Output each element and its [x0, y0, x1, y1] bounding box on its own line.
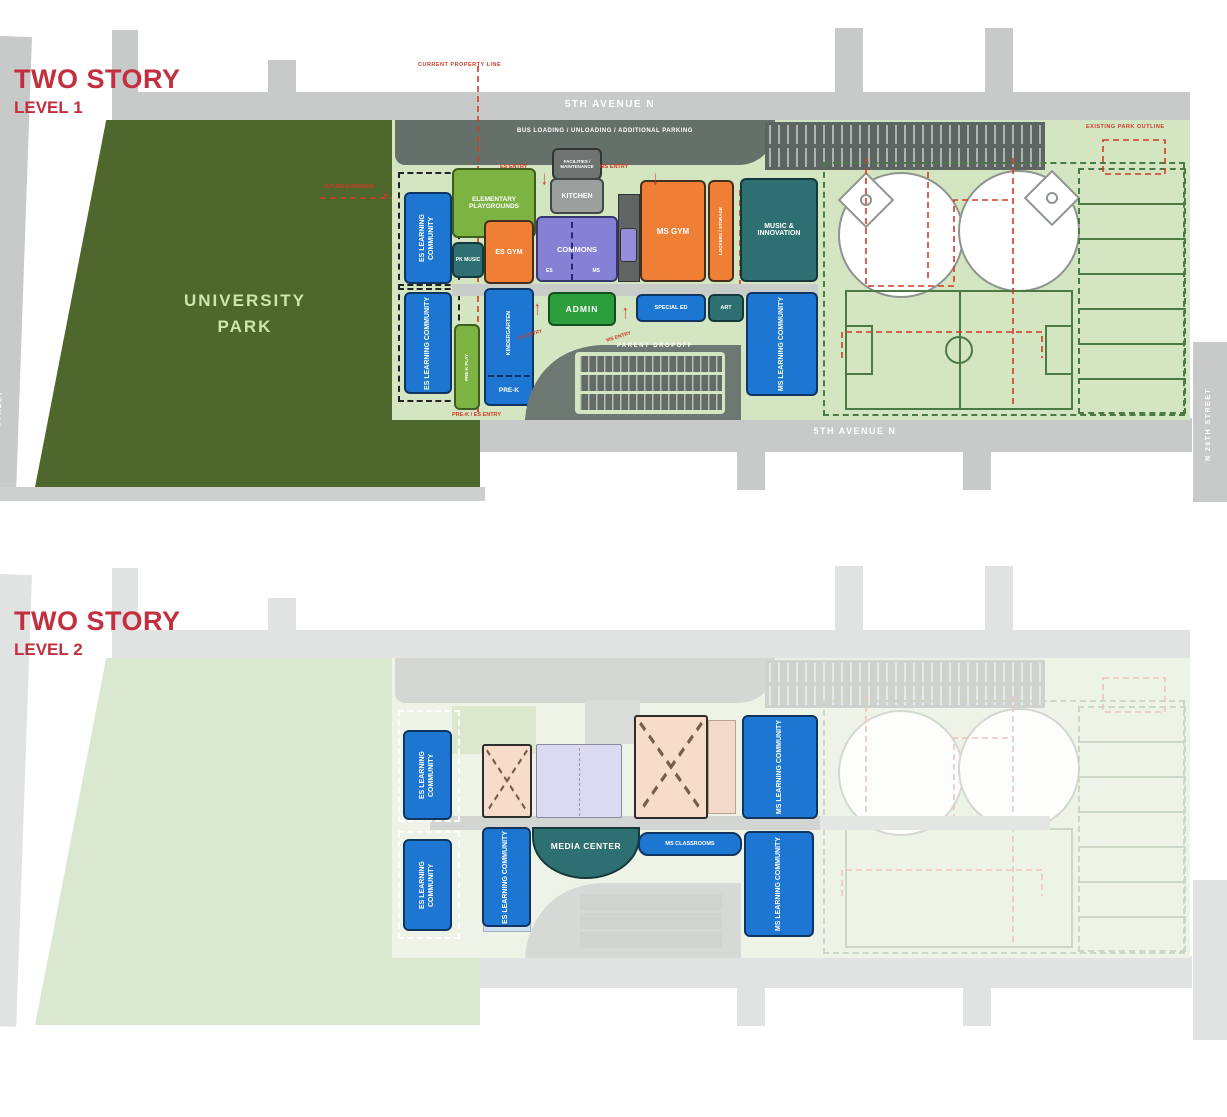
level1-title: TWO STORY: [14, 64, 181, 95]
open-to-below-x-icon: [484, 746, 530, 816]
building-admin: ADMIN: [548, 292, 616, 326]
property-line-label: CURRENT PROPERTY LINE: [418, 62, 501, 68]
level1-subtitle: LEVEL 1: [14, 98, 83, 118]
level2-title: TWO STORY: [14, 606, 181, 637]
building-music-innovation: MUSIC & INNOVATION: [740, 178, 818, 282]
level-2-plan: ES LEARNING COMMUNITY MS LEARNING COMMUN…: [0, 560, 1227, 1117]
open-to-below-x-icon: [636, 717, 706, 817]
building-lockers-storage: LOCKERS / STORAGE: [708, 180, 734, 282]
building-kitchen: KITCHEN: [550, 178, 604, 214]
site-plan-canvas: 5TH AVENUE N N 35TH STREET N 26TH STREET…: [0, 0, 1227, 1117]
building-ms-learning-community-l2-top: MS LEARNING COMMUNITY: [742, 715, 818, 819]
open-to-below-large: [634, 715, 708, 819]
volume-divider: [579, 748, 580, 816]
future-expansion-label: FUTURE EXPANSION: [318, 184, 380, 191]
es-entry-top-label: ES ENTRY: [500, 164, 527, 170]
corridor-level2-faded: [820, 816, 1050, 830]
building-facilities-maintenance: FACILITIES / MAINTENANCE: [552, 148, 602, 180]
es-entry-up-arrow-icon: ↑: [534, 296, 541, 319]
ms-entry-down-arrow-icon: ↓: [652, 166, 659, 189]
building-es-learning-community-l2-bottom-left: ES LEARNING COMMUNITY: [403, 839, 452, 931]
future-expansion-arrow-icon: ➤: [383, 192, 388, 199]
dropoff-row-faded: [580, 913, 722, 929]
open-to-below-small: [482, 744, 532, 818]
es-entry-down-arrow-icon: ↓: [541, 166, 548, 189]
existing-park-label: EXISTING PARK OUTLINE: [1086, 124, 1165, 130]
prek-entry-label: PRE-K / ES ENTRY: [452, 412, 501, 418]
building-es-gym: ES GYM: [484, 220, 534, 284]
commons-upper-volume: [536, 744, 622, 818]
building-ms-learning-community-l2-bottom: MS LEARNING COMMUNITY: [744, 831, 814, 937]
kindergarten-section: KINDERGARTEN: [506, 291, 513, 375]
dropoff-row-faded: [580, 894, 722, 910]
dropoff-parking-row: [580, 356, 722, 372]
building-commons: COMMONS ES MS: [536, 216, 618, 282]
building-ms-learning-community: MS LEARNING COMMUNITY: [746, 292, 818, 396]
commons-ms-label: MS: [593, 268, 601, 274]
dropoff-row-faded: [580, 932, 722, 948]
building-ms-gym: MS GYM: [640, 180, 706, 282]
building-ms-classrooms: MS CLASSROOMS: [638, 832, 742, 856]
building-es-learning-community-lower: ES LEARNING COMMUNITY: [404, 292, 452, 394]
ms-entry-up-arrow-icon: ↑: [622, 300, 629, 323]
building-prek-play: PRE-K PLAY: [454, 324, 480, 410]
dropoff-parking-row: [580, 375, 722, 391]
ms-entry-top-label: MS ENTRY: [600, 164, 628, 170]
commons-es-label: ES: [546, 268, 553, 274]
parent-dropoff-label: PARENT DROPOFF: [600, 343, 710, 349]
building-es-learning-community-l2-bottom-mid: ES LEARNING COMMUNITY: [482, 827, 531, 927]
gym-upper-volume-ext: [708, 720, 736, 814]
building-art: ART: [708, 294, 744, 322]
level-1-plan: 5TH AVENUE N N 35TH STREET N 26TH STREET…: [0, 0, 1227, 560]
building-es-learning-community-upper: ES LEARNING COMMUNITY: [404, 192, 452, 284]
stage-tab: [620, 228, 637, 262]
building-special-ed: SPECIAL ED: [636, 294, 706, 322]
dropoff-parking-row: [580, 394, 722, 410]
building-es-learning-community-l2-top: ES LEARNING COMMUNITY: [403, 730, 452, 820]
commons-divider: [571, 222, 573, 280]
level2-subtitle: LEVEL 2: [14, 640, 83, 660]
building-pk-music: PK MUSIC: [452, 242, 484, 278]
entry-stub-ghost: [585, 700, 640, 744]
